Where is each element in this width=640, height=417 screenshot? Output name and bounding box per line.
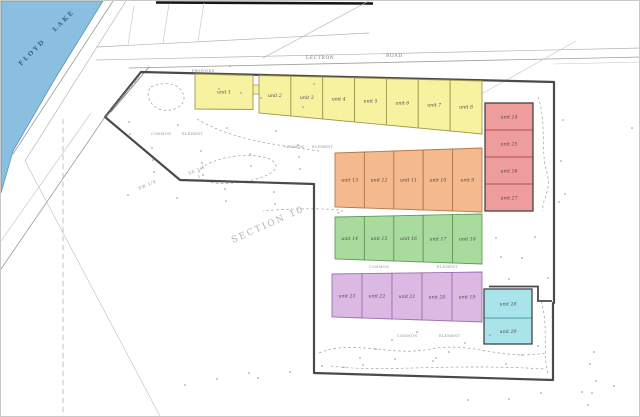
spot-dot — [375, 348, 377, 350]
lot-label: unit 17 — [429, 236, 446, 242]
spot-dot — [591, 392, 593, 394]
spot-dot — [176, 197, 178, 199]
spot-dot — [500, 256, 502, 258]
proposed-label: PROPOSED — [192, 69, 215, 73]
lot-label: unit 6 — [395, 100, 409, 106]
spot-dot — [226, 127, 228, 129]
common-label: COMMON — [369, 265, 389, 269]
sheet-edge-line — [156, 3, 373, 4]
right-of-way-label: PROPOSED RIGHT OF WAY — [103, 75, 141, 120]
element-label: ELEMENT — [439, 334, 461, 338]
spot-dot — [271, 74, 273, 76]
lot-label: unit 9 — [460, 178, 474, 184]
lot-label: unit 28 — [500, 301, 517, 307]
sw-quarter-label: SW 1/4 — [138, 180, 157, 192]
spot-dot — [298, 156, 300, 158]
spot-dot — [540, 392, 542, 394]
yellow-row: unit 2unit 3unit 4unit 5unit 6unit 7unit… — [259, 76, 482, 135]
spot-dot — [560, 160, 562, 162]
spot-dot — [218, 88, 220, 90]
lot-label: unit 15 — [371, 236, 388, 242]
road-lines — [1, 1, 640, 417]
spot-dot — [184, 384, 186, 386]
spot-dot — [416, 331, 418, 333]
lot-label: unit 7 — [427, 102, 441, 108]
lot-label: unit 14 — [341, 236, 358, 242]
spot-dot — [589, 363, 591, 365]
lot-label: unit 21 — [399, 294, 416, 300]
spot-dot — [177, 124, 179, 126]
spot-dot — [343, 366, 345, 368]
spot-dot — [464, 342, 466, 344]
lot-groups: unit 1unit 2unit 3unit 4unit 5unit 6unit… — [195, 74, 533, 344]
spot-dot — [248, 372, 250, 374]
lot-label: unit 12 — [371, 178, 388, 184]
road-label-road: ROAD — [386, 53, 403, 59]
spot-dot — [229, 65, 231, 67]
spot-dot — [225, 200, 227, 202]
lot-label: unit 5 — [364, 99, 378, 105]
spot-dot — [273, 191, 275, 193]
spot-dot — [260, 97, 262, 99]
lot-label: unit 3 — [300, 95, 314, 101]
spot-dot — [558, 201, 560, 203]
plat-sheet: FLOYD LAKE unit 1unit 2unit 3u — [0, 0, 640, 417]
spot-dot — [508, 278, 510, 280]
spot-dot — [249, 153, 251, 155]
spot-dot — [201, 162, 203, 164]
spot-dot — [432, 360, 434, 362]
spot-dot — [151, 147, 153, 149]
spot-dot — [362, 364, 364, 366]
common-label: COMMON — [151, 132, 171, 136]
road-label-lectron: LECTRON — [306, 55, 334, 61]
lot-label: unit 18 — [459, 237, 476, 243]
lot-label: unit 27 — [501, 195, 518, 201]
spot-dot — [562, 119, 564, 121]
spot-dot — [593, 351, 595, 353]
spot-dot — [302, 106, 304, 108]
lot-label: unit 29 — [500, 329, 517, 335]
lot-label: unit 25 — [501, 141, 518, 147]
spot-dot — [129, 133, 131, 135]
spot-dot — [200, 150, 202, 152]
spot-dot — [613, 385, 615, 387]
spot-dot — [521, 354, 523, 356]
element-label: ELEMENT — [182, 132, 204, 136]
spot-dot — [581, 391, 583, 393]
spot-dot — [313, 83, 315, 85]
spot-dot — [547, 277, 549, 279]
lot-label: unit 11 — [400, 178, 417, 184]
lot-label: unit 10 — [429, 178, 446, 184]
plat-drawing: FLOYD LAKE unit 1unit 2unit 3u — [1, 1, 640, 417]
spot-dot — [521, 257, 523, 259]
spot-dot — [435, 357, 437, 359]
spot-dot — [467, 399, 469, 401]
spot-dot — [152, 159, 154, 161]
spot-dot — [587, 404, 589, 406]
lot-label: unit 26 — [501, 168, 518, 174]
spot-dot — [537, 345, 539, 347]
lot-label: unit 4 — [332, 97, 346, 103]
lot-label: unit 13 — [341, 178, 358, 184]
element-label: ELEMENT — [312, 145, 334, 149]
lot-label: unit 20 — [429, 294, 446, 300]
spot-dot — [274, 203, 276, 205]
spot-dot — [394, 358, 396, 360]
common-label: COMMON — [397, 334, 417, 338]
spot-dot — [299, 168, 301, 170]
spot-dot — [495, 237, 497, 239]
spot-dot — [250, 165, 252, 167]
spot-dot — [359, 357, 361, 359]
spot-dot — [489, 334, 491, 336]
lot-label: unit 16 — [400, 236, 417, 242]
lot-label: unit 23 — [339, 293, 356, 299]
lot-label: unit 1 — [217, 90, 231, 96]
orange-row: unit 13unit 12unit 11unit 10unit 9 — [335, 148, 482, 212]
spot-dot — [202, 174, 204, 176]
yellow-row: unit 1 — [195, 74, 253, 110]
spot-dot — [127, 194, 129, 196]
spot-dot — [505, 363, 507, 365]
spot-dot — [224, 188, 226, 190]
green-row: unit 14unit 15unit 16unit 17unit 18 — [335, 214, 482, 264]
spot-dot — [564, 193, 566, 195]
spot-dot — [216, 378, 218, 380]
spot-dot — [153, 171, 155, 173]
spot-dot — [534, 236, 536, 238]
spot-dot — [289, 371, 291, 373]
lot-label: unit 22 — [369, 294, 386, 300]
spot-dot — [321, 365, 323, 367]
spot-dot — [631, 127, 633, 129]
lot-label: unit 2 — [268, 93, 282, 99]
spot-dot — [128, 121, 130, 123]
spot-dot — [448, 351, 450, 353]
spot-dot — [508, 398, 510, 400]
lot-label: unit 24 — [501, 114, 518, 120]
red-column: unit 24unit 25unit 26unit 27 — [485, 103, 533, 211]
spot-dot — [257, 377, 259, 379]
lot-label: unit 8 — [459, 104, 473, 110]
spot-dot — [391, 339, 393, 341]
lot-label: unit 19 — [459, 295, 476, 301]
purple-row: unit 23unit 22unit 21unit 20unit 19 — [332, 272, 482, 322]
common-label: COMMON — [284, 145, 304, 149]
spot-dot — [595, 380, 597, 382]
element-label: ELEMENT — [437, 265, 459, 269]
spot-dot — [275, 130, 277, 132]
spot-dot — [240, 92, 242, 94]
cyan-column: unit 28unit 29 — [484, 289, 532, 344]
